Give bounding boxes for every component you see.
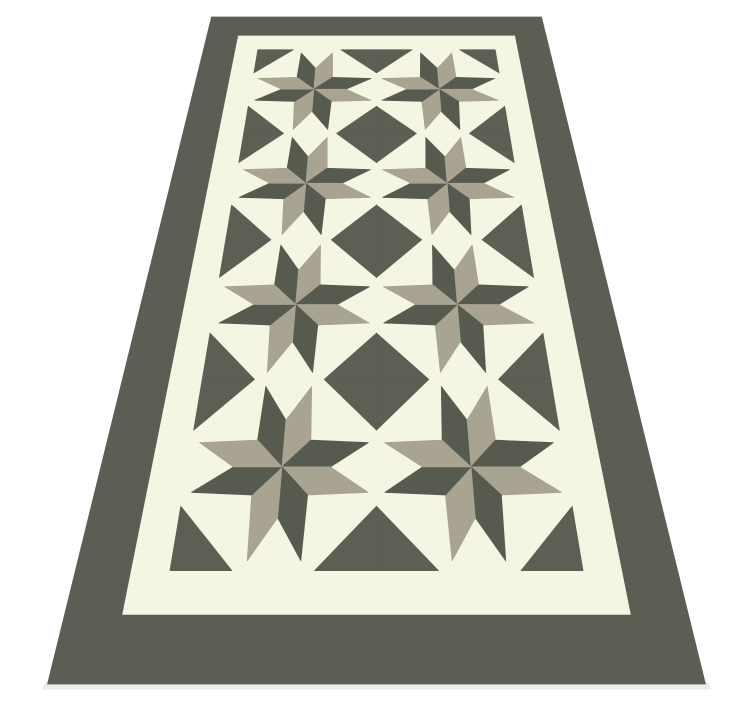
rug-svg xyxy=(0,0,752,703)
rug xyxy=(43,17,711,689)
rug-illustration xyxy=(0,0,752,703)
